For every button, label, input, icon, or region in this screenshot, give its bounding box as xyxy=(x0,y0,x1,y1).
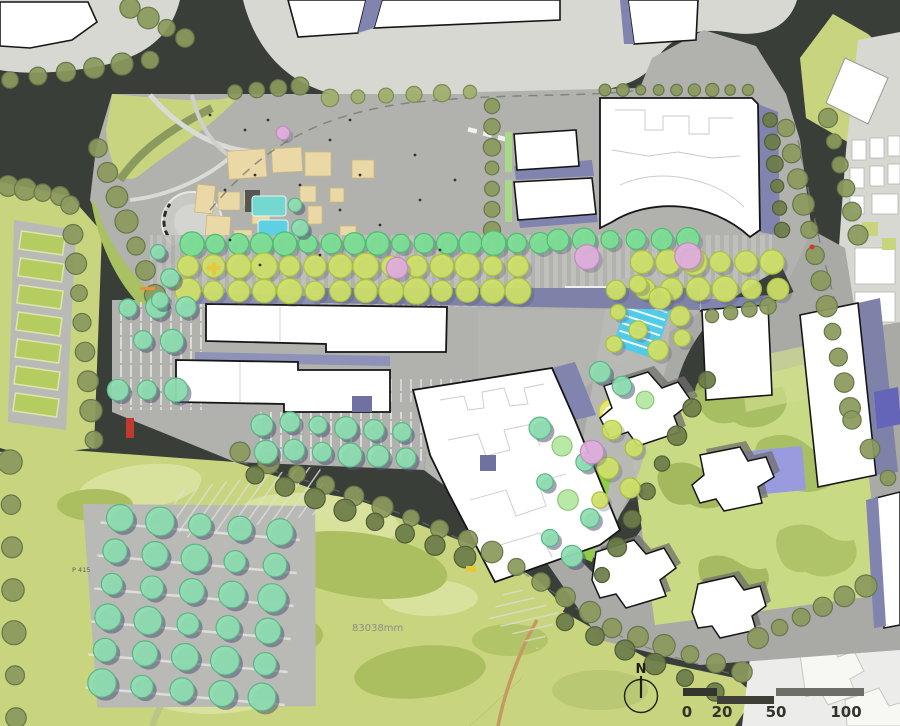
mint-tree xyxy=(224,551,246,573)
olive-tree xyxy=(834,586,855,607)
paleolive-tree xyxy=(463,85,476,98)
olive-tree xyxy=(2,72,18,88)
bright-tree xyxy=(547,229,569,251)
yellow-tree xyxy=(648,340,669,361)
darkolive-tree xyxy=(454,546,476,568)
olive-tree xyxy=(1,495,20,514)
right-edge-lawn-2 xyxy=(882,238,896,250)
olive-tree xyxy=(813,597,832,616)
c1-green-strip xyxy=(505,132,512,172)
slab2-annex-shadow xyxy=(352,396,372,412)
mint-tree xyxy=(181,544,209,572)
olive-tree xyxy=(681,646,699,664)
olive-tree xyxy=(832,157,848,173)
mint-tree xyxy=(254,440,277,463)
olive-tree xyxy=(777,119,794,136)
olive-tree xyxy=(855,575,877,597)
yellow-tree xyxy=(710,252,731,273)
bright-tree xyxy=(601,230,619,248)
yellow-tree xyxy=(330,280,351,301)
red-dot-marker xyxy=(810,245,815,250)
olive-tree xyxy=(106,186,128,208)
olive-tree xyxy=(78,371,99,392)
olive-tree xyxy=(771,619,787,635)
darkolive-tree xyxy=(396,524,415,543)
mint-tree xyxy=(170,678,194,702)
bright-tree xyxy=(180,232,204,256)
person-dot xyxy=(229,239,232,242)
scale-tick-100: 100 xyxy=(830,703,861,721)
building-c2 xyxy=(514,178,596,220)
olive-tree xyxy=(75,342,94,361)
mint-tree xyxy=(228,516,253,541)
mint-tree xyxy=(309,416,327,434)
bright-tree xyxy=(344,233,366,255)
mint-tree xyxy=(151,245,166,260)
pale-tree xyxy=(558,490,579,511)
olive-tree xyxy=(65,253,86,274)
mint-tree xyxy=(164,378,188,402)
paleolive-tree xyxy=(379,88,394,103)
paleolive-tree xyxy=(406,86,422,102)
orange-bench-marker xyxy=(140,287,155,290)
person-dot xyxy=(419,199,422,202)
mint-tree xyxy=(209,681,235,707)
darkolive-tree xyxy=(305,488,326,509)
paleolive-tree xyxy=(351,90,365,104)
bright-tree xyxy=(250,233,272,255)
person-dot xyxy=(414,154,417,157)
mint-tree xyxy=(542,530,559,547)
bright-tree xyxy=(459,232,482,255)
mint-tree xyxy=(251,414,273,436)
mint-tree xyxy=(189,514,212,537)
darkolive-tree xyxy=(763,113,778,128)
bright-tree xyxy=(626,230,646,250)
darkolive-tree xyxy=(766,156,783,173)
person-dot xyxy=(209,114,212,117)
olive-tree xyxy=(725,85,735,95)
yellow-tree xyxy=(686,277,710,301)
bright-tree xyxy=(273,232,297,256)
olive-tree xyxy=(806,246,824,264)
mint-tree xyxy=(216,616,240,640)
olive-tree xyxy=(158,20,175,37)
person-dot xyxy=(299,184,302,187)
darkolive-tree xyxy=(772,201,786,215)
mint-tree xyxy=(589,361,610,382)
mint-tree xyxy=(283,439,304,460)
olive-tree xyxy=(793,194,815,216)
olive-tree xyxy=(653,85,664,96)
pink-tree xyxy=(386,257,407,278)
olive-tree xyxy=(73,314,91,332)
mint-tree xyxy=(367,445,389,467)
yellow-tree xyxy=(455,253,480,278)
yellow-tree xyxy=(456,280,479,303)
bright-tree xyxy=(228,234,249,255)
paleolive-tree xyxy=(433,85,450,102)
mint-tree xyxy=(134,331,153,350)
olive-tree xyxy=(484,98,499,113)
olive-tree xyxy=(2,537,23,558)
person-dot xyxy=(454,179,457,182)
olive-tree xyxy=(848,225,868,245)
olive-tree xyxy=(707,654,726,673)
darkolive-tree xyxy=(246,466,264,484)
olive-tree xyxy=(29,67,47,85)
yellow-tree xyxy=(712,276,737,301)
mint-tree xyxy=(106,504,133,531)
yellow-tree xyxy=(606,336,622,352)
dimension-label: 83038mm xyxy=(352,623,403,634)
mint-tree xyxy=(137,380,156,399)
person-dot xyxy=(254,174,257,177)
mint-tree xyxy=(364,420,385,441)
olive-tree xyxy=(860,439,880,459)
darkolive-tree xyxy=(586,627,605,646)
olive-tree xyxy=(732,662,752,682)
yellow-tree xyxy=(252,279,276,303)
yellow-tree xyxy=(620,478,640,498)
olive-tree xyxy=(2,621,26,645)
yellow-tree xyxy=(606,280,625,299)
olive-tree xyxy=(688,84,700,96)
olive-tree xyxy=(484,201,500,217)
mint-tree xyxy=(134,606,162,634)
mint-tree xyxy=(142,542,168,568)
mint-tree xyxy=(177,613,199,635)
olive-tree xyxy=(97,162,117,182)
darkolive-tree xyxy=(667,426,686,445)
olive-tree xyxy=(138,7,160,29)
pale-tree xyxy=(552,436,572,456)
mint-tree xyxy=(581,509,600,528)
bright-tree xyxy=(366,232,389,255)
bright-tree xyxy=(321,233,341,253)
yellow-tree xyxy=(670,306,690,326)
mint-tree xyxy=(254,653,277,676)
person-dot xyxy=(259,264,262,267)
mint-tree xyxy=(152,292,169,309)
yellow-tree xyxy=(505,278,531,304)
yellow-tree xyxy=(431,281,452,302)
north-label: N xyxy=(636,662,647,677)
mint-tree xyxy=(312,442,331,461)
darkolive-tree xyxy=(556,613,573,630)
scale-tick-50: 50 xyxy=(766,703,787,721)
olive-tree xyxy=(270,80,287,97)
darkolive-tree xyxy=(677,670,694,687)
yellow-tree xyxy=(629,321,647,339)
mint-tree xyxy=(612,376,631,395)
building-top-3 xyxy=(628,0,698,44)
mint-tree xyxy=(211,646,240,675)
olive-tree xyxy=(843,202,862,221)
yellow-tree xyxy=(228,280,250,302)
olive-tree xyxy=(80,400,102,422)
olive-tree xyxy=(2,579,24,601)
olive-tree xyxy=(111,53,133,75)
yellow-tree xyxy=(203,281,223,301)
scale-tick-0: 0 xyxy=(682,703,692,721)
olive-tree xyxy=(249,82,265,98)
person-dot xyxy=(267,119,270,122)
mint-tree xyxy=(95,604,121,630)
scale-tick-20: 20 xyxy=(712,703,733,721)
yellow-tree xyxy=(735,251,758,274)
bright-tree xyxy=(507,233,526,252)
yellow-tree xyxy=(177,255,198,276)
darkolive-tree xyxy=(699,372,716,389)
mint-tree xyxy=(131,675,153,697)
darkolive-tree xyxy=(771,179,784,192)
olive-tree xyxy=(706,83,719,96)
olive-tree xyxy=(602,618,621,637)
olive-tree xyxy=(56,62,75,81)
yellow-tree xyxy=(629,275,647,293)
mint-tree xyxy=(161,269,180,288)
mint-tree xyxy=(107,379,128,400)
mint-tree xyxy=(335,417,358,440)
olive-tree xyxy=(811,271,831,291)
mint-tree xyxy=(338,443,362,467)
site-plan-canvas: 83038mm P 415 N 0 20 50 100 xyxy=(0,0,900,726)
olive-tree xyxy=(63,224,83,244)
yellow-tree xyxy=(507,255,528,276)
mint-tree xyxy=(171,643,198,670)
mint-tree xyxy=(393,423,412,442)
building-c1 xyxy=(514,130,579,170)
mint-tree xyxy=(292,220,309,237)
yellow-tree xyxy=(304,255,326,277)
olive-tree xyxy=(61,196,79,214)
person-dot xyxy=(349,119,352,122)
mint-tree xyxy=(101,573,122,594)
olive-tree xyxy=(127,237,145,255)
yellow-tree xyxy=(354,279,377,302)
olive-tree xyxy=(818,108,837,127)
building-h-core xyxy=(480,455,496,471)
olive-tree xyxy=(481,541,503,563)
yellow-tree xyxy=(227,254,251,278)
mint-tree xyxy=(119,299,137,317)
olive-tree xyxy=(85,431,103,449)
bright-tree xyxy=(392,234,410,252)
parking-count-label: P 415 xyxy=(72,566,90,574)
mint-tree xyxy=(537,474,553,490)
yellow-tree xyxy=(480,279,504,303)
olive-tree xyxy=(485,161,499,175)
olive-tree xyxy=(483,139,500,156)
olive-tree xyxy=(532,573,550,591)
person-dot xyxy=(379,224,382,227)
paleolive-tree xyxy=(321,89,338,106)
pink-tree xyxy=(575,245,600,270)
building-e2-accent xyxy=(874,387,900,429)
mint-tree xyxy=(248,683,276,711)
mint-tree xyxy=(132,641,157,666)
olive-tree xyxy=(792,608,810,626)
olive-tree xyxy=(636,85,646,95)
site-plan: 83038mm P 415 N 0 20 50 100 xyxy=(0,0,900,726)
yellow-tree xyxy=(630,250,653,273)
olive-tree xyxy=(508,559,525,576)
mint-tree xyxy=(288,198,302,212)
olive-tree xyxy=(176,29,194,47)
olive-tree xyxy=(34,184,51,201)
olive-tree xyxy=(880,470,895,485)
olive-tree xyxy=(228,85,242,99)
yellow-tree xyxy=(674,330,691,347)
darkolive-tree xyxy=(615,640,635,660)
mint-tree xyxy=(267,519,294,546)
olive-tree xyxy=(760,298,777,315)
olive-tree xyxy=(579,601,600,622)
olive-tree xyxy=(788,169,808,189)
mint-tree xyxy=(103,539,127,563)
mint-tree xyxy=(146,507,175,536)
yellow-tree xyxy=(403,278,429,304)
olive-tree xyxy=(617,84,630,97)
olive-tree xyxy=(837,179,854,196)
yellow-tree xyxy=(328,254,352,278)
olive-tree xyxy=(141,51,158,68)
mint-tree xyxy=(88,669,116,697)
person-dot xyxy=(359,174,362,177)
olive-tree xyxy=(71,285,88,302)
olive-tree xyxy=(6,666,25,685)
person-dot xyxy=(244,129,247,132)
olive-tree xyxy=(599,84,611,96)
yellow-tree xyxy=(305,281,325,301)
olive-tree xyxy=(484,119,500,135)
building-top-1 xyxy=(288,0,366,37)
olive-tree xyxy=(843,411,861,429)
bright-tree xyxy=(651,229,672,250)
olive-tree xyxy=(0,450,22,474)
olive-tree xyxy=(782,144,801,163)
olive-tree xyxy=(120,0,140,18)
yellow-tree xyxy=(602,420,621,439)
scale-segment-1 xyxy=(683,688,717,696)
scale-segment-3 xyxy=(776,688,864,696)
yellow-tree xyxy=(379,279,404,304)
person-dot xyxy=(339,209,342,212)
yellow-tree xyxy=(625,439,643,457)
olive-tree xyxy=(291,77,309,95)
pink-tree xyxy=(580,440,603,463)
yellow-tree xyxy=(277,278,302,303)
pale-tree xyxy=(636,391,654,409)
person-dot xyxy=(439,249,442,252)
yellow-tree xyxy=(353,253,379,279)
mint-tree xyxy=(258,584,287,613)
yellow-tree xyxy=(649,287,671,309)
yellow-tree xyxy=(483,256,503,276)
red-kiosk-marker xyxy=(126,418,134,438)
mint-tree xyxy=(561,545,582,566)
yellow-tree xyxy=(592,492,608,508)
olive-tree xyxy=(748,628,769,649)
olive-tree xyxy=(742,302,758,318)
yellow-tree xyxy=(741,279,761,299)
mint-tree xyxy=(263,553,287,577)
yellow-tree xyxy=(610,304,625,319)
mint-tree xyxy=(396,448,416,468)
darkolive-tree xyxy=(644,653,665,674)
yellow-tree xyxy=(279,256,300,277)
olive-tree xyxy=(556,587,576,607)
olive-tree xyxy=(115,210,138,233)
yellow-tree xyxy=(760,250,784,274)
darkolive-tree xyxy=(683,399,701,417)
mint-tree xyxy=(529,417,551,439)
mint-tree xyxy=(140,576,163,599)
mint-tree xyxy=(255,618,281,644)
person-dot xyxy=(329,139,332,142)
olive-tree xyxy=(742,84,753,95)
mint-tree xyxy=(280,412,300,432)
olive-tree xyxy=(671,84,683,96)
pink-tree xyxy=(276,126,290,140)
darkolive-tree xyxy=(774,222,789,237)
yellow-marker-2 xyxy=(466,566,476,572)
darkolive-tree xyxy=(366,513,383,530)
olive-tree xyxy=(801,221,818,238)
person-dot xyxy=(224,189,227,192)
darkolive-tree xyxy=(765,134,781,150)
olive-tree xyxy=(84,58,105,79)
olive-tree xyxy=(89,139,107,157)
person-dot xyxy=(319,254,322,257)
olive-tree xyxy=(705,309,718,322)
bright-tree xyxy=(481,231,505,255)
olive-tree xyxy=(723,305,737,319)
olive-tree xyxy=(824,323,841,340)
olive-tree xyxy=(6,708,26,726)
yellow-tree xyxy=(251,253,277,279)
pink-tree xyxy=(675,243,701,269)
olive-tree xyxy=(136,261,156,281)
mint-tree xyxy=(160,329,183,352)
mint-tree xyxy=(93,638,116,661)
mint-tree xyxy=(176,297,197,318)
olive-tree xyxy=(834,373,853,392)
olive-tree xyxy=(230,442,250,462)
olive-tree xyxy=(816,296,837,317)
darkolive-tree xyxy=(623,510,641,528)
darkolive-tree xyxy=(607,538,626,557)
olive-tree xyxy=(485,181,500,196)
bright-tree xyxy=(206,234,225,253)
olive-tree xyxy=(829,348,847,366)
darkolive-tree xyxy=(275,477,294,496)
mint-tree xyxy=(180,579,205,604)
yellow-tree xyxy=(767,278,789,300)
darkolive-tree xyxy=(334,499,356,521)
c2-green-strip xyxy=(505,180,512,222)
darkolive-tree xyxy=(654,456,669,471)
darkolive-tree xyxy=(425,535,445,555)
bright-tree xyxy=(414,233,434,253)
darkolive-tree xyxy=(595,568,610,583)
olive-tree xyxy=(827,134,842,149)
mint-tree xyxy=(219,581,246,608)
olive-tree xyxy=(14,178,36,200)
yellow-tree xyxy=(430,254,454,278)
